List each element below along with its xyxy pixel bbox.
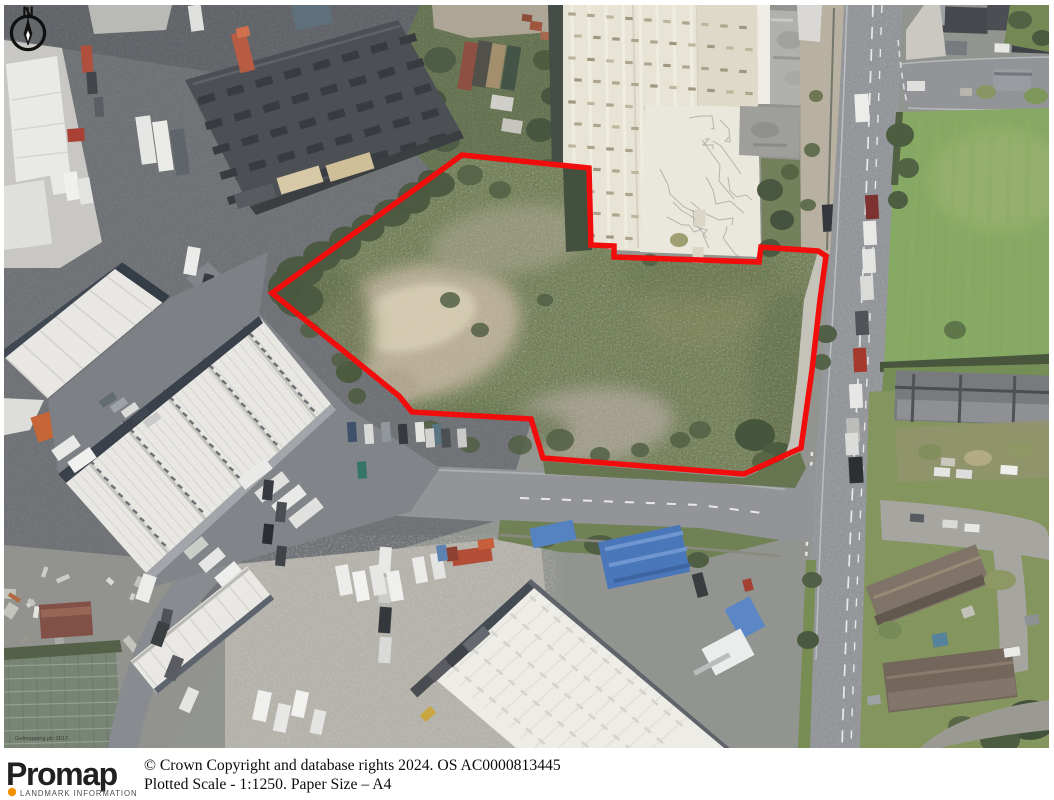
svg-text:N: N <box>22 5 34 22</box>
svg-text:Promap: Promap <box>6 756 118 792</box>
svg-text:© Crown Copyright and database: © Crown Copyright and database rights 20… <box>144 757 561 774</box>
svg-text:Plotted Scale - 1:1250. Paper: Plotted Scale - 1:1250. Paper Size – A4 <box>144 776 392 793</box>
svg-text:LANDMARK INFORMATION: LANDMARK INFORMATION <box>20 789 138 798</box>
svg-text:Getmapping plc 2017.: Getmapping plc 2017. <box>15 736 70 742</box>
